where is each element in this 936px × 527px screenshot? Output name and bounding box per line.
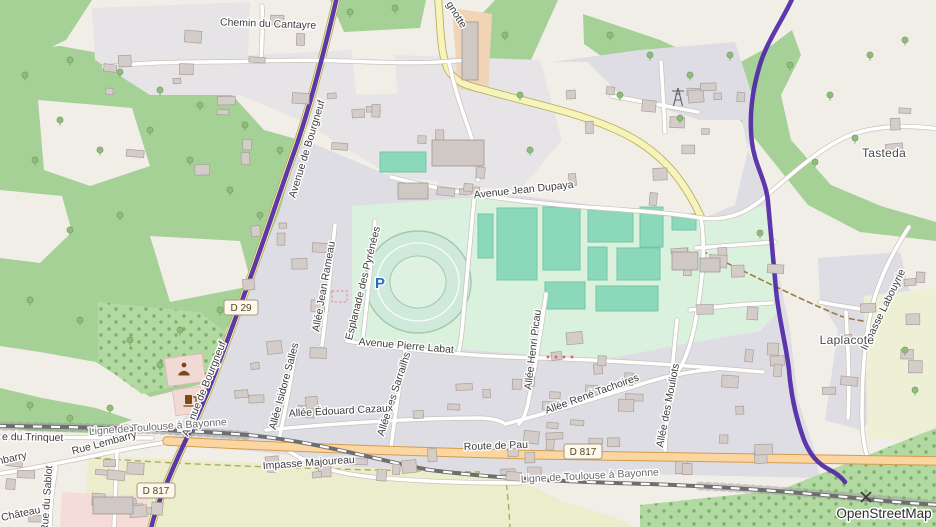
route-ref-badge-d817-southwest: D 817 xyxy=(137,483,175,498)
attribution-link[interactable]: OpenStreetMap xyxy=(836,506,931,521)
svg-text:D 29: D 29 xyxy=(230,303,252,314)
road-label-rue-du-trinquet-partial: e du Trinquet xyxy=(2,431,64,444)
route-ref-badge-d29: D 29 xyxy=(224,300,258,315)
parking-icon[interactable]: P xyxy=(375,275,385,292)
road-label-route-de-pau: Route de Pau xyxy=(464,439,529,453)
svg-text:D 817: D 817 xyxy=(570,447,597,458)
route-ref-badge-d817-main: D 817 xyxy=(564,444,602,459)
map-viewport[interactable]: P Chemin du Cantayre gnotte Avenue Jean … xyxy=(0,0,936,527)
place-label-laplacote: Laplacote xyxy=(820,333,875,347)
place-label-tasteda: Tasteda xyxy=(862,146,906,160)
map-canvas: P Chemin du Cantayre gnotte Avenue Jean … xyxy=(0,0,936,527)
svg-text:D 817: D 817 xyxy=(143,486,170,497)
